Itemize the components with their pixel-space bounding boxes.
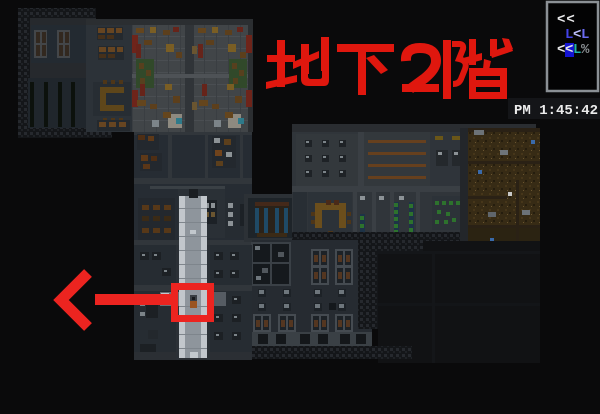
svg-text:<<: <<: [557, 12, 576, 28]
svg-text:%: %: [581, 42, 590, 58]
svg-text:L: L: [581, 27, 589, 43]
svg-text:PM 1:45:42: PM 1:45:42: [514, 103, 598, 119]
